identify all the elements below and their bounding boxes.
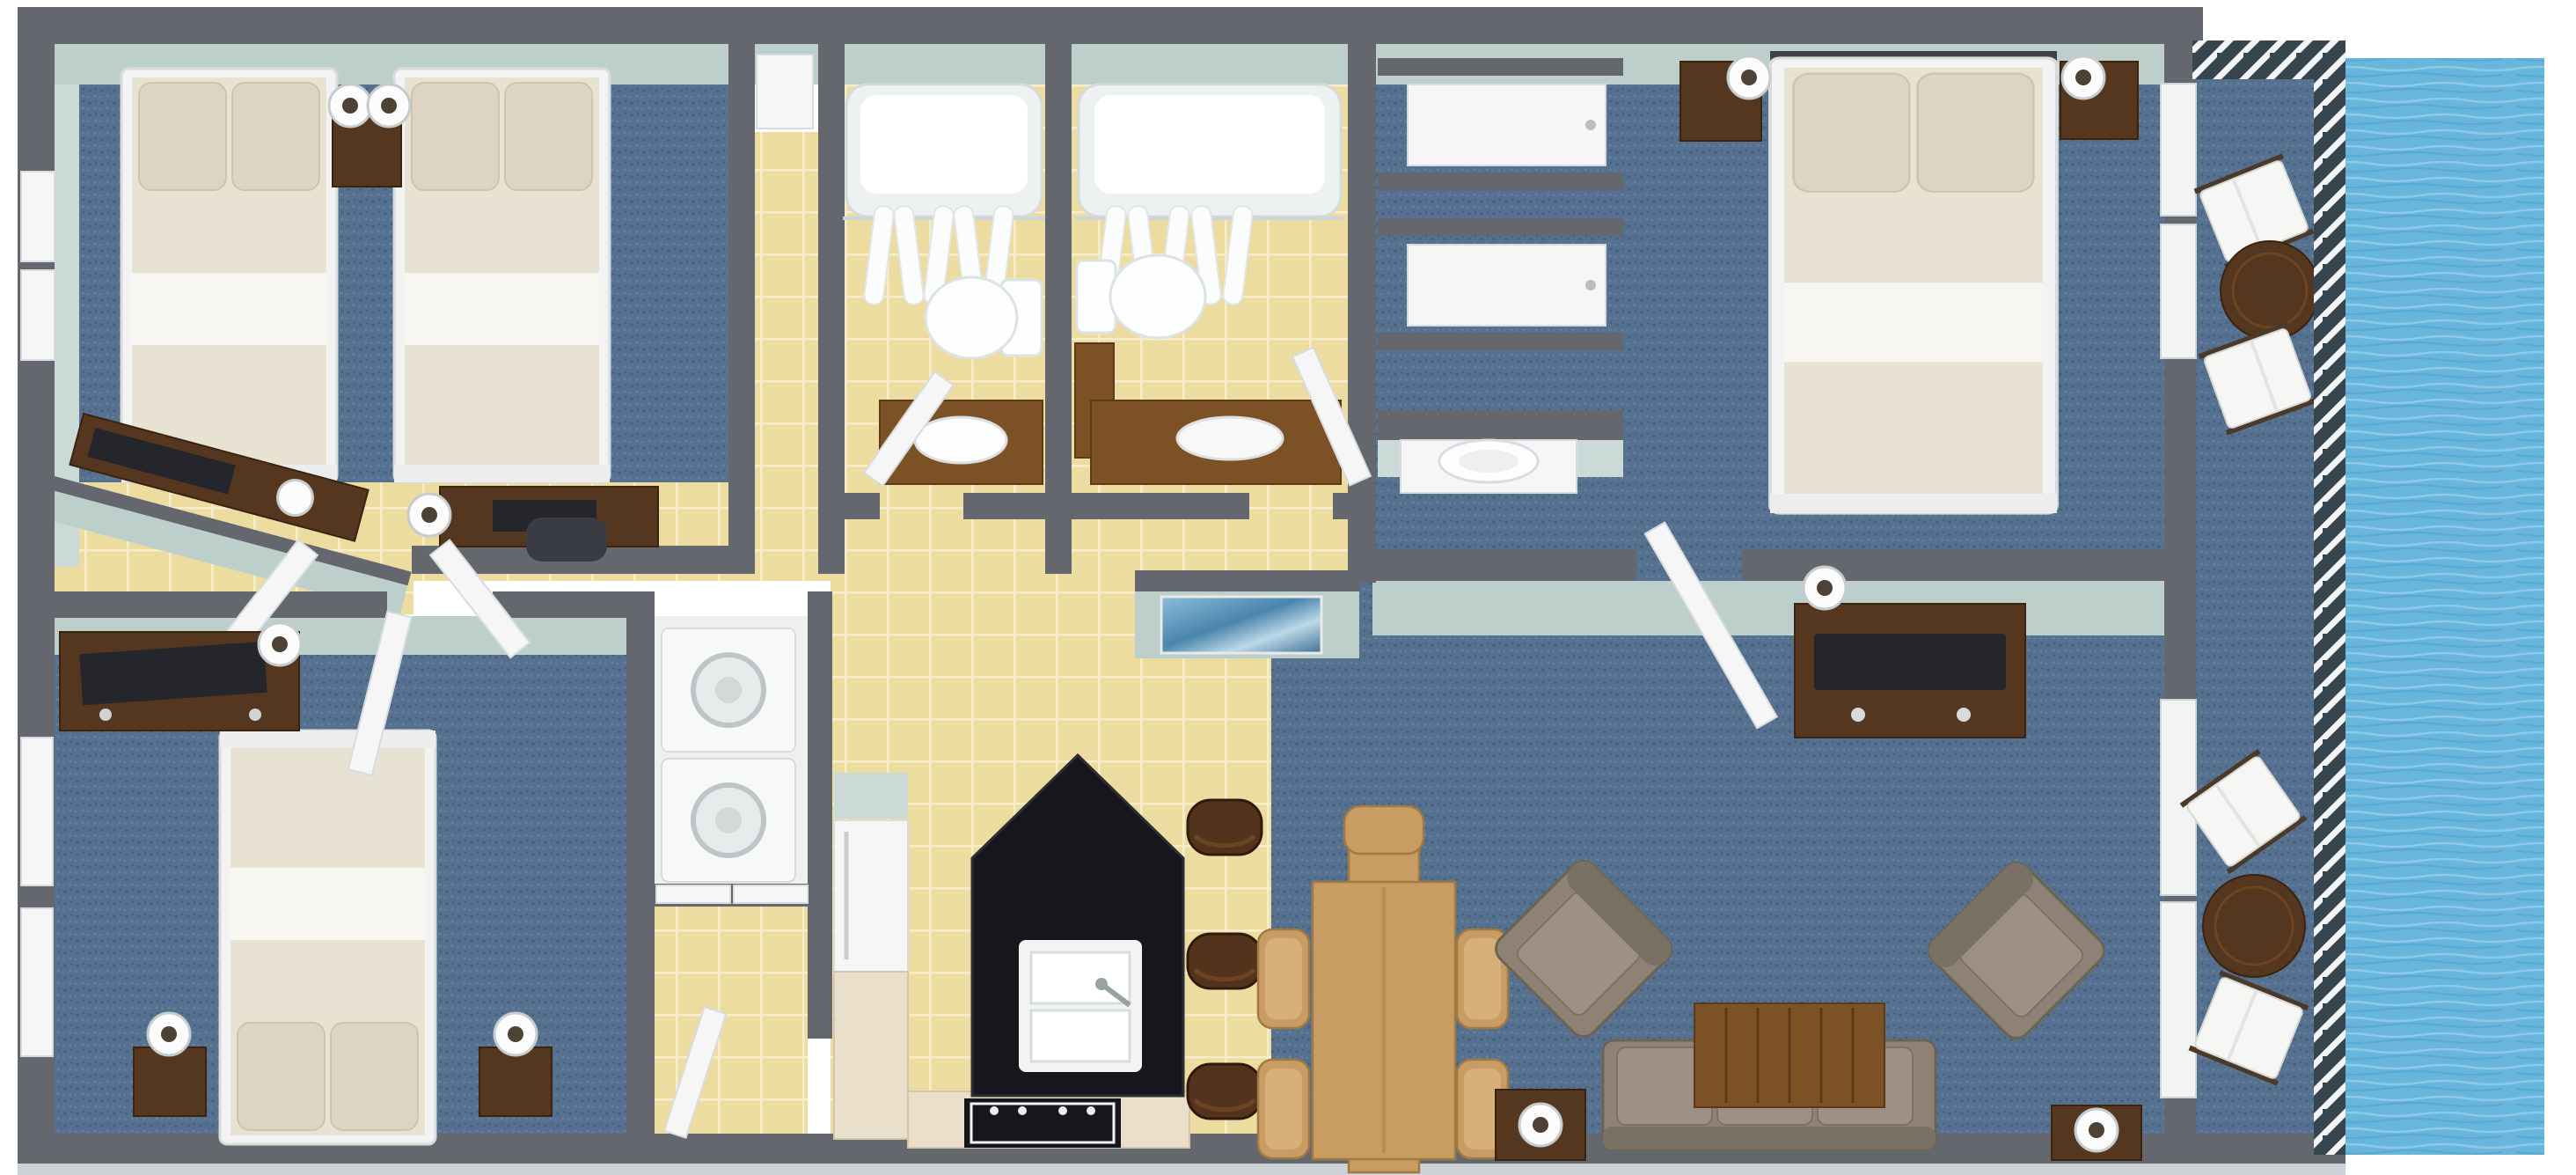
table-lamp: [1519, 1104, 1562, 1146]
round-table: [2203, 875, 2305, 977]
bar-stool: [1188, 1064, 1262, 1119]
wall-master-bottom-a: [1372, 549, 1636, 581]
wall-closet2-top: [1378, 218, 1623, 236]
wall-closet2-bottom: [1378, 333, 1623, 350]
vanity-sink: [1177, 417, 1283, 459]
table-lamp: [368, 84, 410, 127]
wall-bathroom1-bottom-b: [963, 493, 1072, 519]
cylinder-lamp: [408, 494, 450, 536]
dining-chair: [1258, 1060, 1309, 1158]
office-chair: [526, 518, 607, 562]
wall-bedroom2-top-a: [18, 591, 387, 618]
closet-door: [757, 55, 813, 129]
toilet-bowl: [926, 277, 1017, 358]
wall-closet1-bottom: [1378, 173, 1623, 190]
closet-handle: [1585, 280, 1596, 290]
coffee-table: [1694, 1003, 1884, 1107]
double-bed-2: [394, 69, 610, 482]
sink-basin: [1031, 1010, 1130, 1061]
king-bed: [1770, 58, 2057, 513]
window: [21, 270, 55, 360]
railing-right: [2314, 40, 2345, 1155]
wall-art: [1161, 597, 1321, 653]
stove-burner: [990, 1106, 999, 1115]
outer-wall-top: [18, 7, 2203, 44]
side-cabinets: [834, 972, 908, 1139]
wall-bathroom1-bottom-a: [818, 493, 880, 519]
sliding-closet-door: [1408, 84, 1606, 165]
double-bed-1: [121, 69, 337, 482]
washer: [662, 628, 795, 752]
window: [21, 738, 53, 885]
floor-plan-stage: [0, 0, 2576, 1175]
bifold-door: [734, 885, 808, 903]
sliding-glass-door: [2161, 84, 2196, 216]
bar-stool: [1188, 934, 1262, 988]
table-lamp: [259, 623, 301, 665]
wall-hall-art-edge: [1135, 570, 1359, 591]
outer-wall-bottom-band: [18, 1164, 2345, 1175]
wall-closet1-top: [1378, 58, 1623, 76]
table-lamp: [1804, 567, 1846, 609]
closet-handle: [1585, 120, 1596, 130]
table-lamp: [329, 84, 371, 127]
stove: [964, 1098, 1121, 1148]
bar-stool: [1188, 800, 1262, 855]
table-lamp: [2062, 56, 2104, 99]
dining-chair: [1344, 806, 1423, 854]
table-lamp: [148, 1013, 190, 1055]
round-basin-inner: [1459, 450, 1519, 473]
dryer: [662, 759, 795, 882]
bathtub-basin: [860, 95, 1028, 194]
wall-bedroom2-top-b: [493, 591, 632, 618]
wall-bedroom1-right: [728, 42, 755, 574]
table-lamp: [1728, 56, 1770, 99]
sliding-glass-door: [2161, 902, 2196, 1098]
bifold-door: [656, 885, 730, 903]
nightstand: [134, 1047, 206, 1116]
wall-bathroom2-bottom-b: [1333, 493, 1376, 519]
wall-laundry-left: [626, 591, 655, 1140]
table-lamp: [494, 1013, 537, 1055]
wall-laundry-right: [808, 591, 832, 1039]
ocean-water: [2344, 58, 2544, 1155]
window: [21, 172, 55, 261]
vanity-sink: [915, 417, 1006, 463]
toilet-bowl: [1110, 255, 1205, 338]
stove-burner: [1018, 1106, 1027, 1115]
nightstand: [479, 1047, 552, 1116]
dresser-knob: [249, 709, 261, 721]
window: [21, 908, 53, 1056]
master-bottom-wall-face: [1372, 581, 2169, 635]
console-knob: [1957, 708, 1971, 722]
flat-tv: [1814, 634, 2006, 690]
console-knob: [1851, 708, 1865, 722]
table-lamp: [2075, 1109, 2118, 1151]
floor-plan-canvas: [0, 0, 2576, 1175]
kitchen: [834, 755, 1262, 1148]
bathtub-basin: [1094, 95, 1325, 194]
wall-bathroom2-bottom-a: [1070, 493, 1249, 519]
stove-burner: [1087, 1106, 1095, 1115]
queen-bed: [220, 731, 435, 1144]
sliding-glass-door: [2161, 224, 2196, 358]
sliding-closet-door: [1408, 245, 1606, 326]
round-table: [2221, 241, 2319, 340]
stove-burner: [1058, 1106, 1067, 1115]
dresser-knob: [99, 709, 112, 721]
sofa-back: [1603, 1127, 1936, 1149]
dining-chair: [1258, 929, 1309, 1028]
counter: [834, 773, 908, 819]
wall-wetbar-north: [1378, 410, 1623, 440]
